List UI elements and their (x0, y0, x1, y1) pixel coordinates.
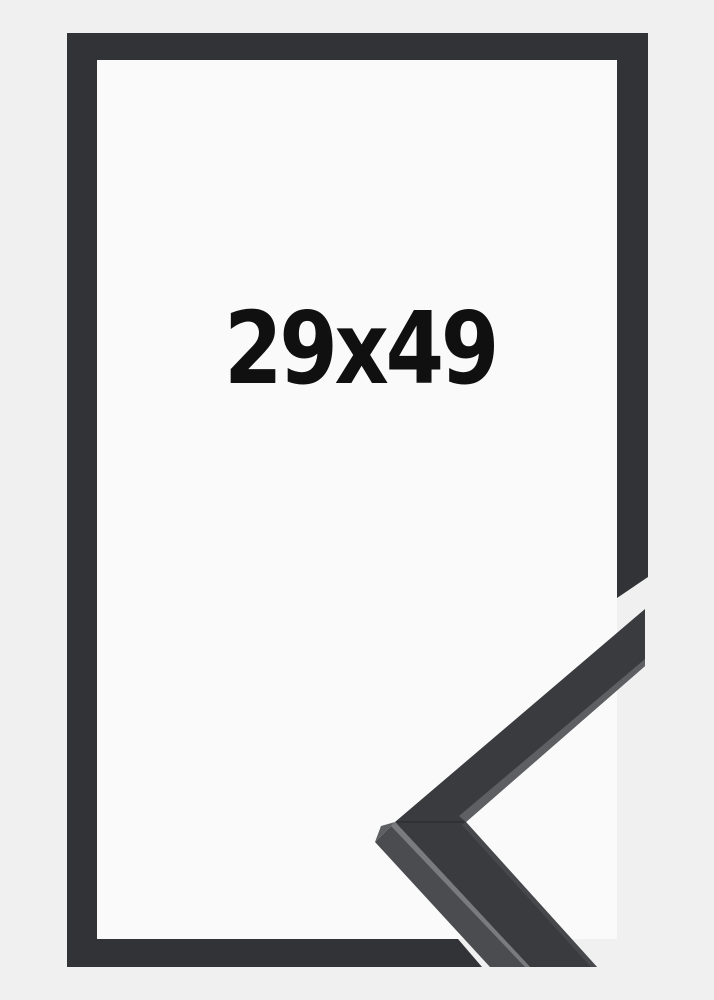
frame-opening (97, 60, 617, 939)
frame-product-photo: 29x49 (0, 0, 714, 1000)
frame-left-bar (67, 33, 97, 967)
frame-right-bar-cut (617, 33, 648, 598)
frame-product-image: 29x49 (0, 0, 714, 1000)
frame-top-bar (67, 33, 648, 60)
frame-bottom-bar-cut (67, 939, 482, 967)
size-label: 29x49 (224, 290, 496, 407)
